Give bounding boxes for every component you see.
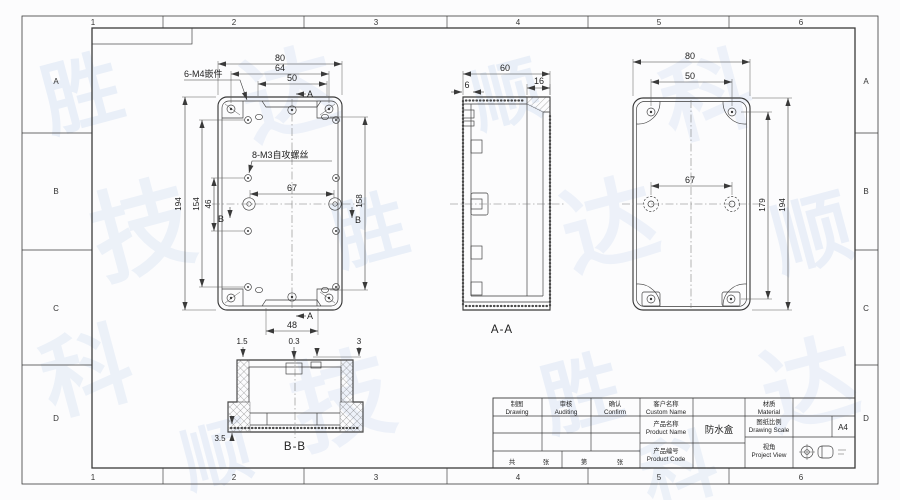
dim-67: 67 [287,183,297,193]
revision-box [92,28,192,44]
section-bb-label: B-B [284,441,306,453]
section-bb-view: 1.5 0.3 3 3.5 B-B [214,337,363,453]
dim-16: 16 [534,76,544,86]
dim-67: 67 [685,175,695,185]
paper-size: A4 [838,423,848,432]
zone-label: 2 [232,18,237,27]
title-drawing-en: Drawing [505,409,529,416]
zone-label: 3 [374,18,379,27]
title-block: 制图 Drawing 审核 Auditing 确认 Confirm 客户名称 C… [493,398,855,468]
dim-50: 50 [287,73,297,83]
zone-label: 6 [799,18,804,27]
dim-64: 64 [275,63,285,73]
zone-label: C [863,304,869,313]
title-auditing-en: Auditing [555,409,578,416]
zone-label: 6 [799,473,804,482]
sheet-no-label: 第 [581,457,587,466]
section-a-mark: A [307,311,313,321]
section-aa-outline [463,97,550,310]
drawing-sheet: 胜 达 顺 科 技 胜 达 顺 科 技 胜 达 顺 科 [0,0,900,500]
sheet-unit-label: 张 [543,457,550,466]
title-view-zh: 视角 [763,442,776,451]
zone-label: D [53,414,59,423]
dim-46: 46 [204,199,213,208]
dim-1-5: 1.5 [236,337,248,346]
zone-label: B [53,187,58,196]
dim-48: 48 [287,320,297,330]
title-scale-en: Drawing Scale [749,427,790,434]
title-confirm-zh: 确认 [609,399,622,408]
zone-ticks-top [163,16,729,28]
zone-label: 3 [374,473,379,482]
title-auditing-zh: 审核 [560,399,573,408]
section-a-mark: A [307,89,313,99]
zone-label: 4 [516,18,521,27]
zone-label: D [863,414,869,423]
zone-label: C [53,304,59,313]
dim-194: 194 [174,197,183,211]
zone-label: 5 [657,18,662,27]
title-drawing-zh: 制图 [511,399,524,408]
dim-158: 158 [355,194,364,208]
dim-154: 154 [192,197,201,211]
title-custom-name-en: Custom Name [646,409,687,416]
note-m4-inserts: 6-M4嵌件 [184,68,223,79]
front-view-outline [218,97,342,310]
dim-50: 50 [685,71,695,81]
wall-bosses [463,110,488,295]
zone-label: 2 [232,473,237,482]
title-view-en: Project View [752,452,787,459]
dim-3: 3 [357,337,362,346]
side-view: 80 50 67 179 194 [622,51,792,310]
title-product-code-en: Product Code [647,456,686,463]
zone-ticks-bottom [163,468,729,484]
section-b-mark: B [218,214,224,224]
zone-ticks-right [855,133,878,365]
dim-80: 80 [685,51,695,61]
section-aa-view: 60 6 16 A-A [450,63,565,336]
zone-ticks-left [22,133,92,365]
front-view: A A B B 80 64 50 67 48 194 [174,53,368,335]
title-custom-name-zh: 客户名称 [653,399,679,408]
dim-60: 60 [500,63,510,73]
zone-label: A [863,77,869,86]
dim-3-5: 3.5 [214,434,226,443]
zone-label: 5 [657,473,662,482]
title-product-code-zh: 产品编号 [653,446,678,455]
zone-label: B [863,187,868,196]
cad-drawing: 1 2 3 4 5 6 1 2 3 4 5 6 A B C D A B C D [0,0,900,500]
title-scale-zh: 图纸比例 [756,417,781,426]
dim-6: 6 [464,80,469,90]
title-material-zh: 材质 [763,399,776,408]
note-m3-screws: 8-M3自攻螺丝 [252,149,309,160]
first-angle-projection-icon [799,444,846,460]
sheet-total-label: 共 [509,457,516,466]
zone-label: 4 [516,473,521,482]
sheet-unit-label: 张 [617,457,624,466]
product-name-value: 防水盒 [705,424,734,436]
title-product-name-zh: 产品名称 [653,419,679,428]
title-confirm-en: Confirm [604,409,626,416]
title-product-name-en: Product Name [646,429,687,436]
section-aa-label: A-A [491,324,513,336]
dim-194: 194 [778,198,787,212]
dim-179: 179 [758,198,767,212]
dim-0-3: 0.3 [288,337,300,346]
section-b-mark: B [355,215,361,225]
zone-label: 1 [91,473,96,482]
zone-label: 1 [91,18,96,27]
dim-80: 80 [275,53,285,63]
zone-label: A [53,77,59,86]
title-material-en: Material [758,409,780,416]
